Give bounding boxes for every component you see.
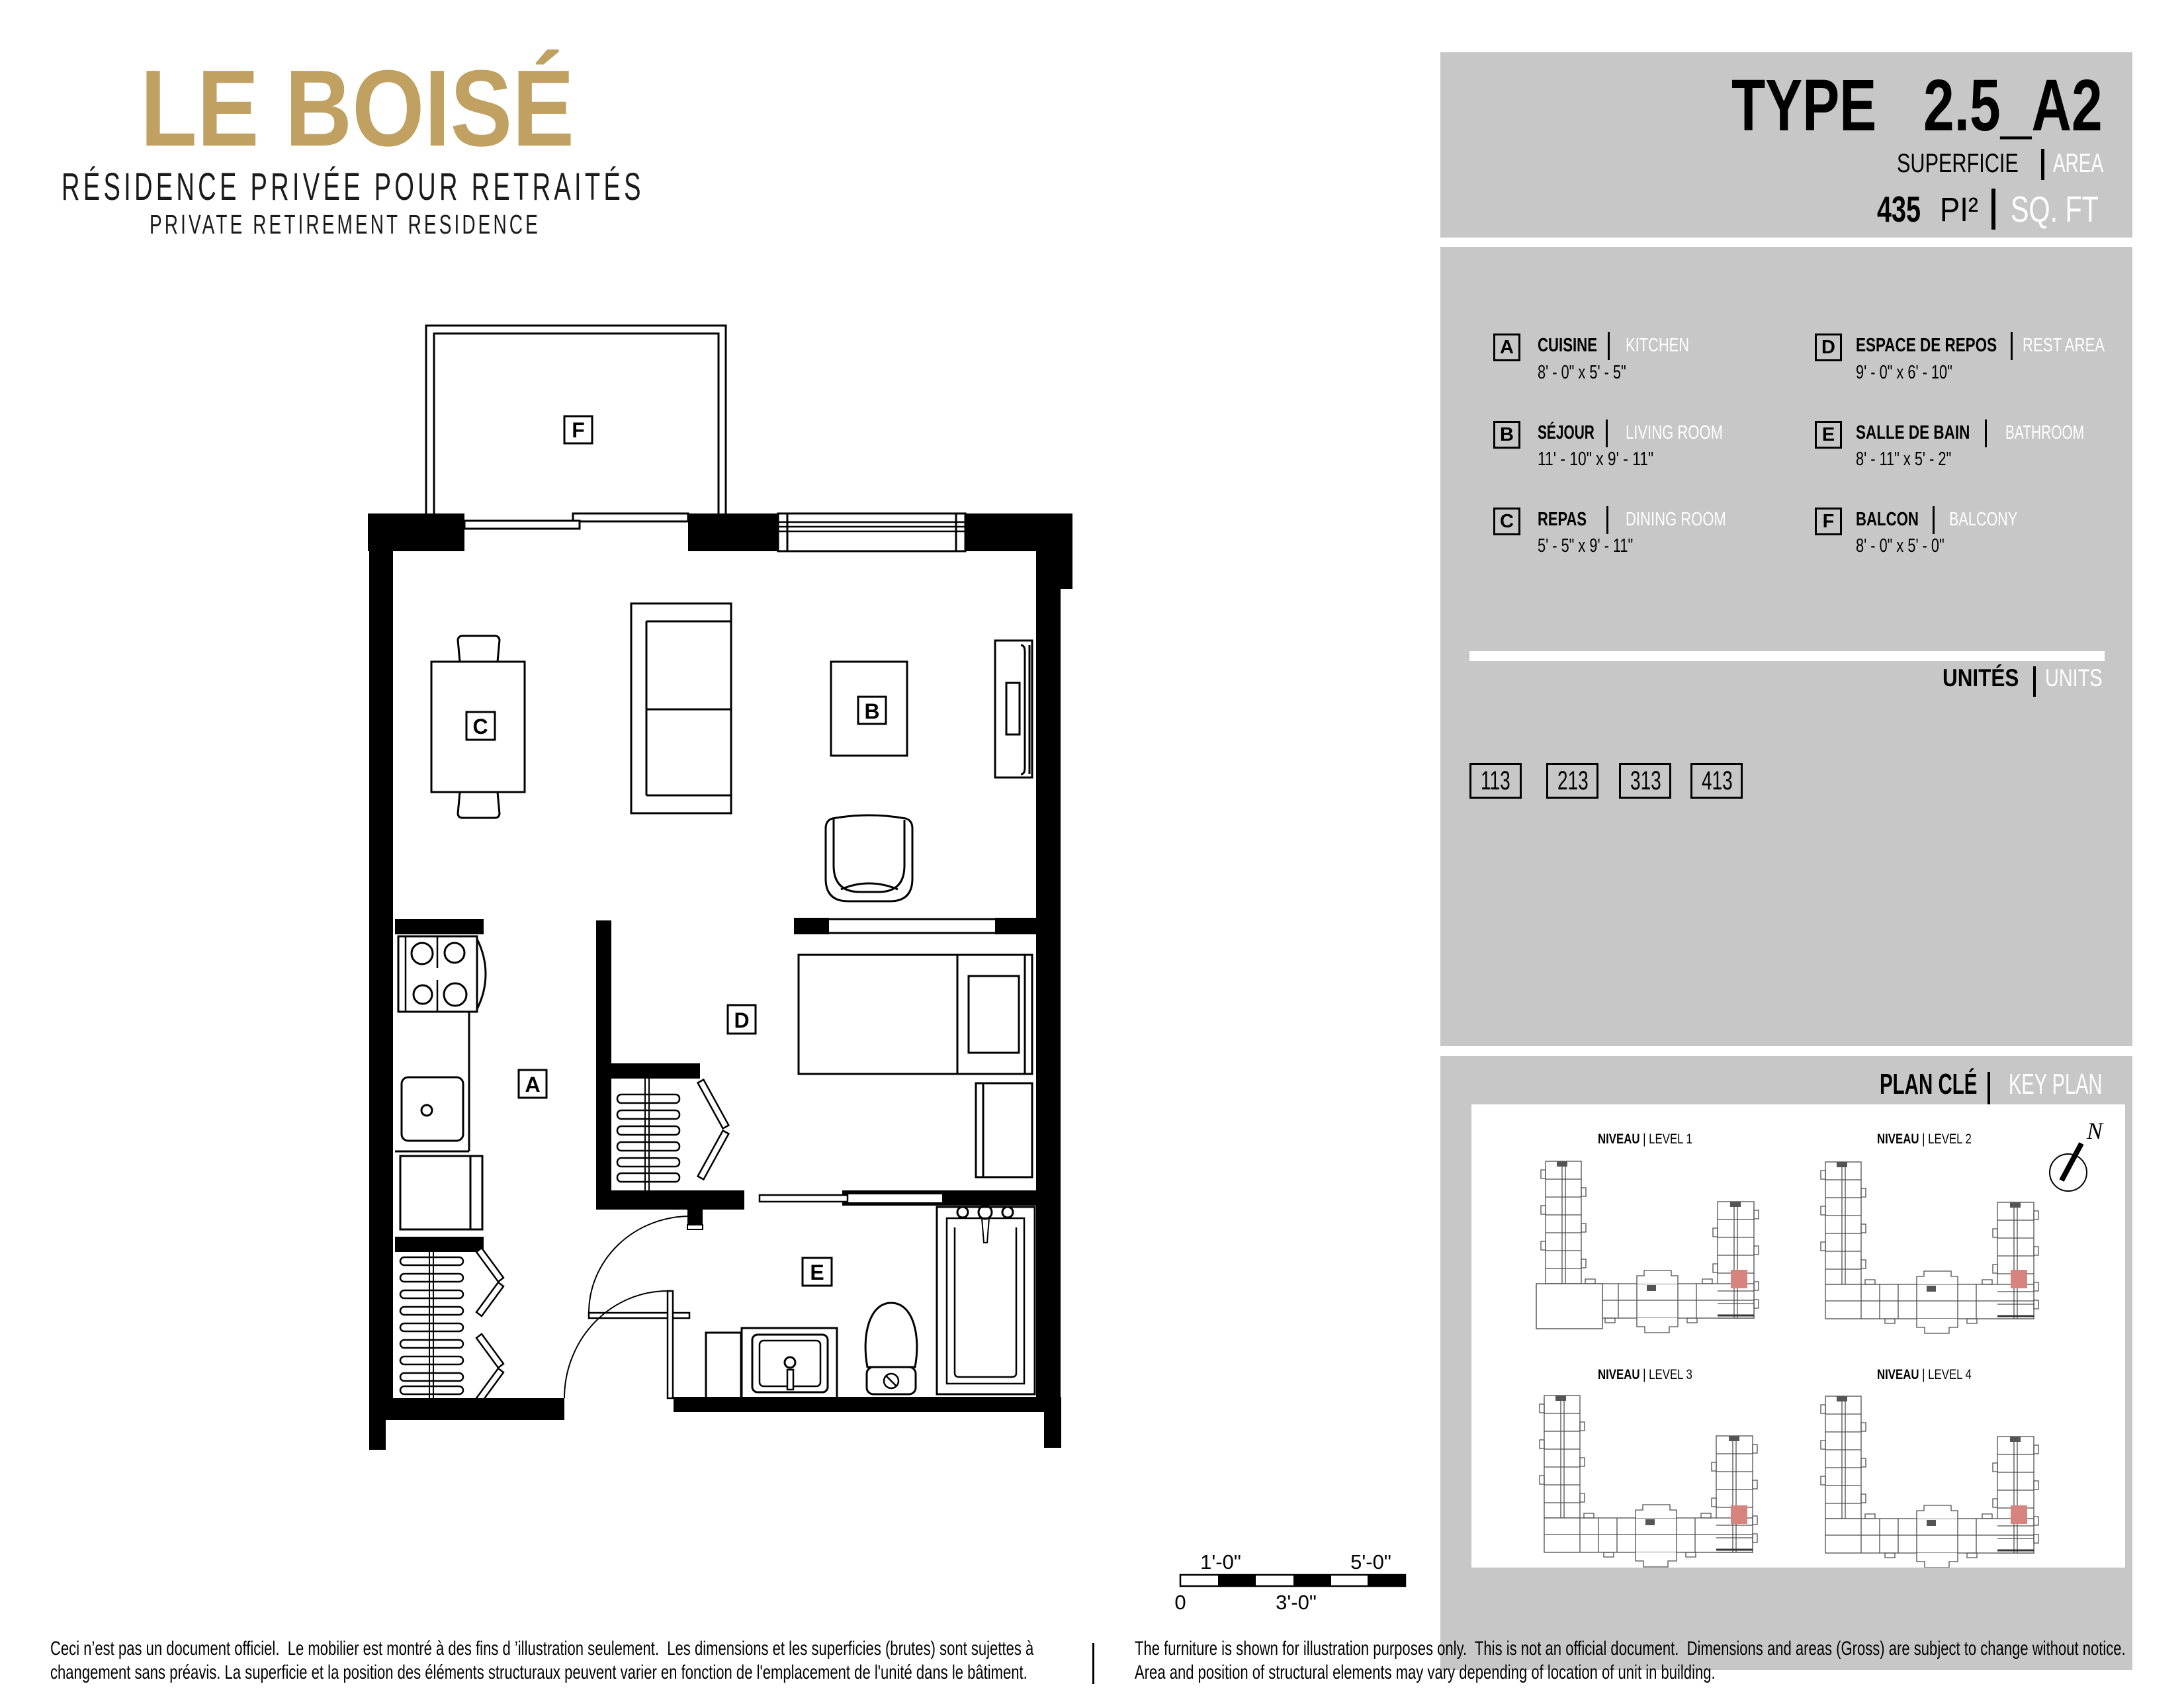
svg-text:F: F [572,418,585,442]
svg-text:A: A [525,1073,540,1096]
svg-text:B: B [864,699,879,723]
svg-text:C: C [472,715,488,738]
svg-text:E: E [810,1261,824,1284]
svg-text:0: 0 [1174,1591,1186,1614]
svg-text:1'-0": 1'-0" [1200,1550,1241,1574]
svg-text:5'-0": 5'-0" [1350,1550,1391,1574]
svg-text:D: D [734,1008,749,1032]
svg-text:3'-0": 3'-0" [1276,1591,1317,1614]
